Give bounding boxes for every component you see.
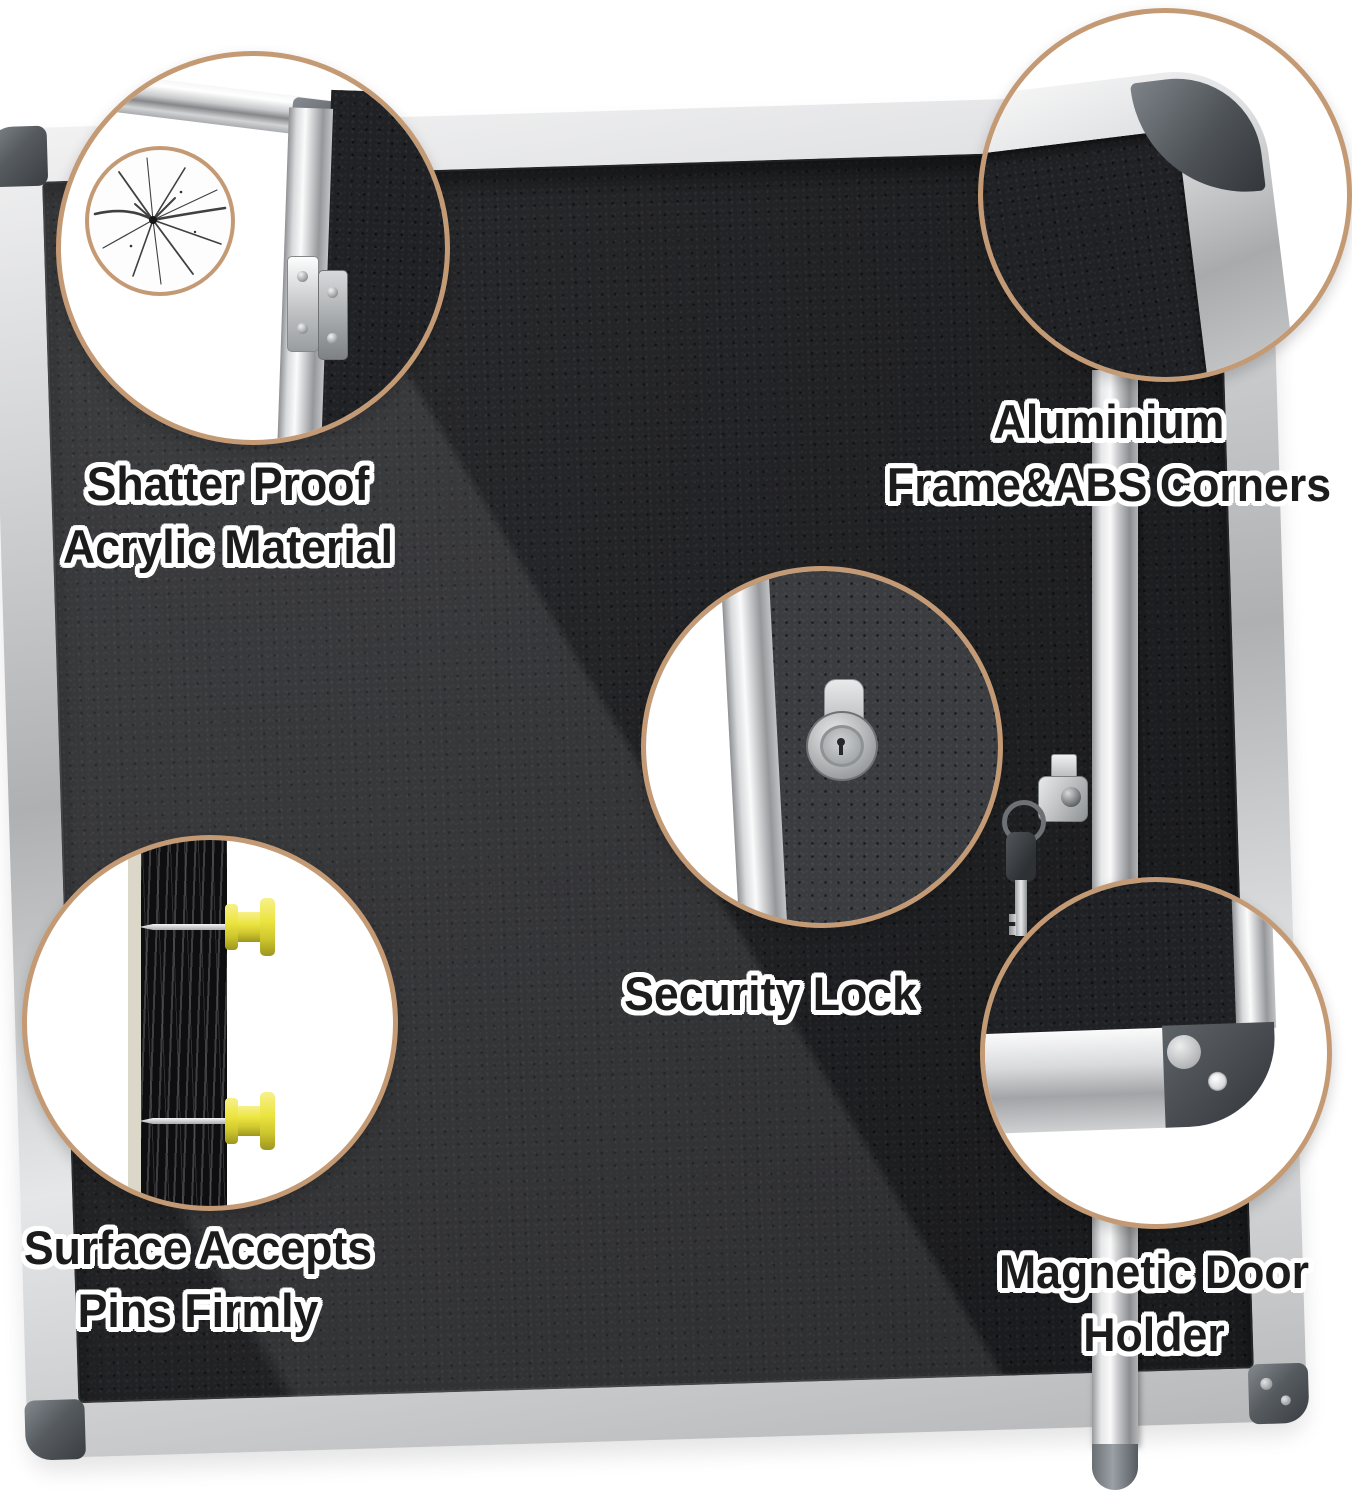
magnet-icon: [1166, 1034, 1201, 1069]
door-side-frame-detail: [1230, 877, 1276, 1029]
felt-behind-door: [319, 90, 450, 445]
label-line: Pins Firmly: [2, 1279, 393, 1342]
pin-base: [260, 898, 275, 956]
label-line: Shatter Proof: [19, 452, 437, 515]
label-security-lock: Security Lock: [607, 962, 935, 1025]
label-line: Holder: [968, 1303, 1340, 1366]
push-pin-icon: [139, 1092, 275, 1150]
crack-lines: [89, 150, 231, 292]
hinge-screw-icon: [327, 287, 338, 298]
label-line: Magnetic Door: [968, 1240, 1340, 1303]
callout-pin-surface: [22, 835, 398, 1211]
label-magnetic-holder: Magnetic Door Holder: [968, 1240, 1340, 1366]
hinge-screw-icon: [297, 323, 308, 334]
hinge-screw-icon: [297, 271, 308, 282]
keyhole-slot-icon: [839, 743, 843, 755]
lock-body-icon: [1038, 776, 1088, 822]
door-bottom-frame-detail: [980, 1028, 1170, 1135]
lock-latch-icon: [1051, 754, 1077, 778]
board-backing-detail: [128, 835, 141, 1211]
hinge-icon: [287, 256, 319, 352]
callout-magnetic-holder: [980, 877, 1332, 1229]
hinge-screw-icon: [327, 333, 338, 344]
pin-neck: [238, 1106, 260, 1136]
pin-needle-icon: [139, 1118, 225, 1124]
push-pin-icon: [139, 898, 275, 956]
label-shatter-proof: Shatter Proof Acrylic Material: [19, 452, 437, 578]
label-line: Aluminium: [878, 390, 1340, 453]
callout-security-lock: [641, 566, 1003, 928]
callout-abs-corner: [978, 8, 1352, 382]
lock-dial-detail: [820, 725, 864, 767]
frame-corner-detail: [978, 61, 1302, 382]
lock-cylinder-icon: [1061, 787, 1081, 807]
pin-flange: [225, 1098, 238, 1144]
key-icon: [1006, 832, 1036, 882]
board-corner-cap-bottom-left: [24, 1399, 86, 1461]
hinge-icon: [318, 270, 348, 360]
screw-hole-icon: [1208, 1072, 1228, 1092]
label-line: Acrylic Material: [19, 515, 437, 578]
label-line: Surface Accepts: [2, 1216, 393, 1279]
cam-lock-icon: [806, 711, 878, 781]
label-pins-firmly: Surface Accepts Pins Firmly: [2, 1216, 393, 1342]
board-corner-cap-top-left: [0, 126, 48, 188]
cracked-glass-icon: [85, 146, 235, 296]
product-feature-image: Shatter Proof Acrylic Material Aluminium…: [0, 0, 1352, 1500]
door-corner-inside-detail: [980, 877, 1332, 1229]
label-line: Security Lock: [607, 962, 935, 1025]
label-aluminium-corners: Aluminium Frame&ABS Corners: [878, 390, 1340, 516]
pin-base: [260, 1092, 275, 1150]
callout-shatter-proof: [56, 51, 450, 445]
corner-screw-icon: [1260, 1378, 1272, 1390]
pin-neck: [238, 912, 260, 942]
felt-detail: [980, 877, 1241, 1039]
door-edge-end-cap: [1092, 1444, 1138, 1490]
pin-needle-icon: [139, 924, 225, 930]
board-corner-cap-bottom-right: [1248, 1363, 1310, 1425]
felt-cross-section: [141, 835, 227, 1211]
abs-corner-bracket-detail: [1162, 1022, 1277, 1128]
pin-flange: [225, 904, 238, 950]
label-line: Frame&ABS Corners: [878, 453, 1340, 516]
corner-screw-icon: [1281, 1395, 1291, 1405]
